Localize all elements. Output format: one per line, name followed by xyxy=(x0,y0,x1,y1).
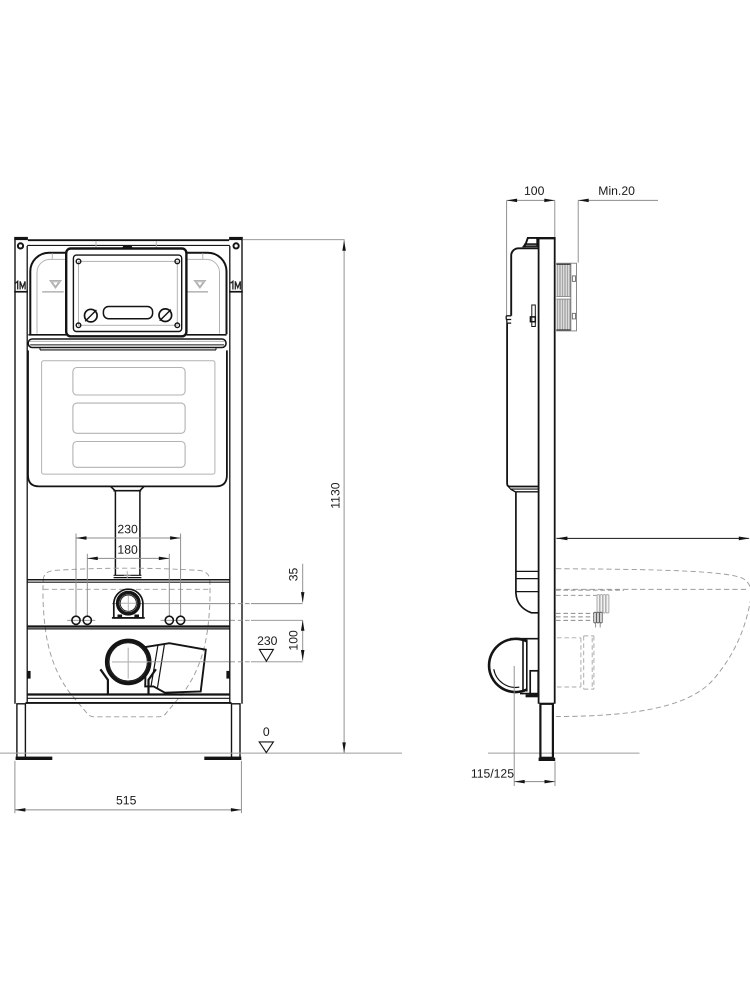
svg-text:100: 100 xyxy=(524,184,545,198)
svg-text:35: 35 xyxy=(286,568,300,582)
svg-text:115/125: 115/125 xyxy=(471,767,514,781)
svg-text:0: 0 xyxy=(263,725,270,739)
svg-text:1130: 1130 xyxy=(329,482,343,508)
svg-text:100: 100 xyxy=(286,630,300,651)
svg-text:180: 180 xyxy=(117,543,138,557)
svg-text:230: 230 xyxy=(117,522,138,536)
svg-text:230: 230 xyxy=(257,634,278,648)
svg-text:Min.20: Min.20 xyxy=(598,184,635,198)
svg-text:515: 515 xyxy=(116,793,137,807)
